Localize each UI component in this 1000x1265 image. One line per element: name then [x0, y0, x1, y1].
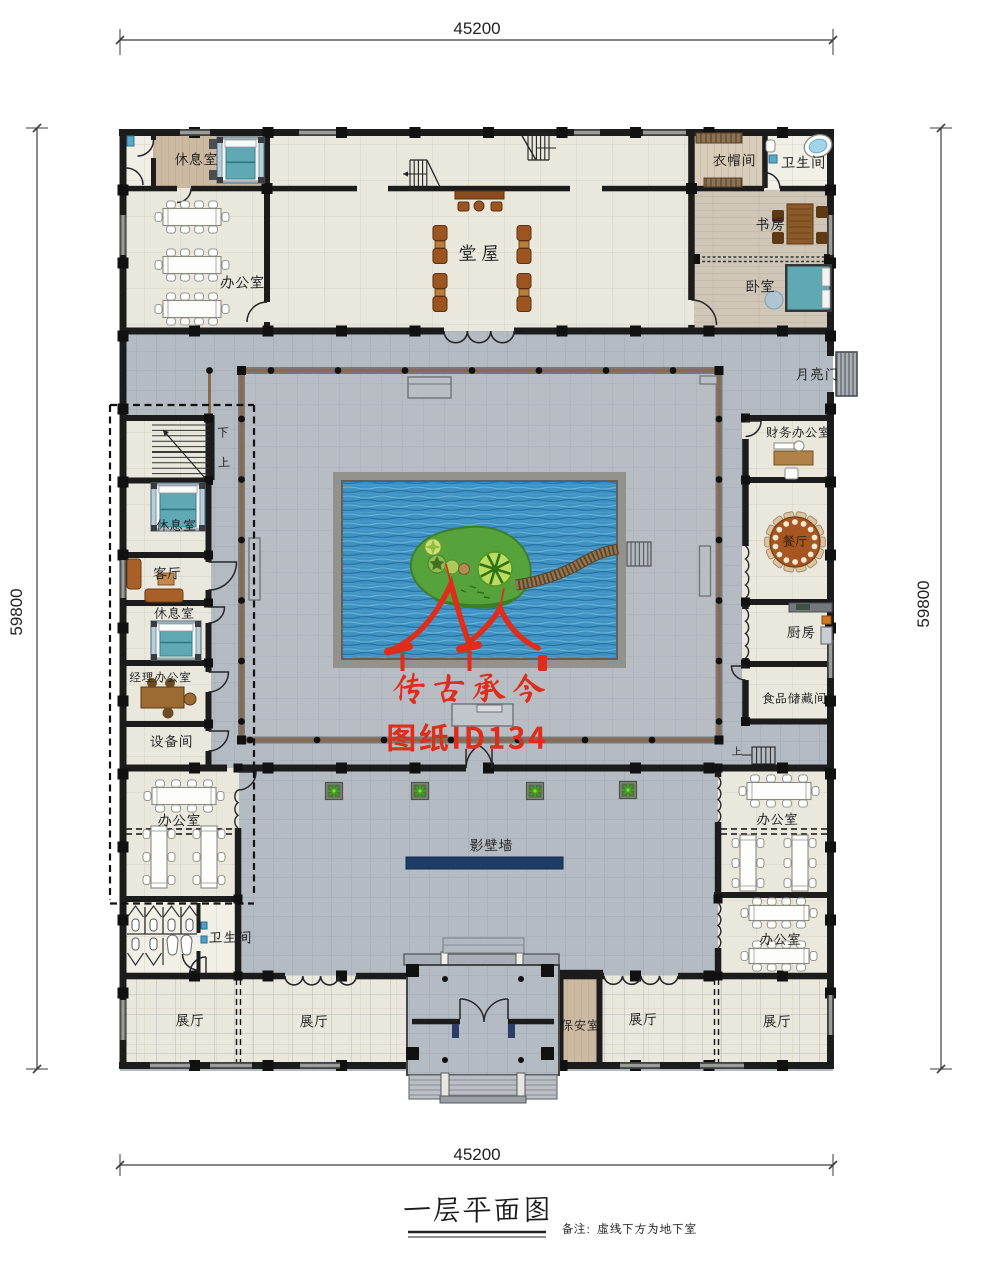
svg-text:59800: 59800	[914, 580, 933, 627]
svg-text:45200: 45200	[453, 1145, 500, 1164]
svg-text:45200: 45200	[453, 19, 500, 38]
svg-text:59800: 59800	[7, 588, 26, 635]
